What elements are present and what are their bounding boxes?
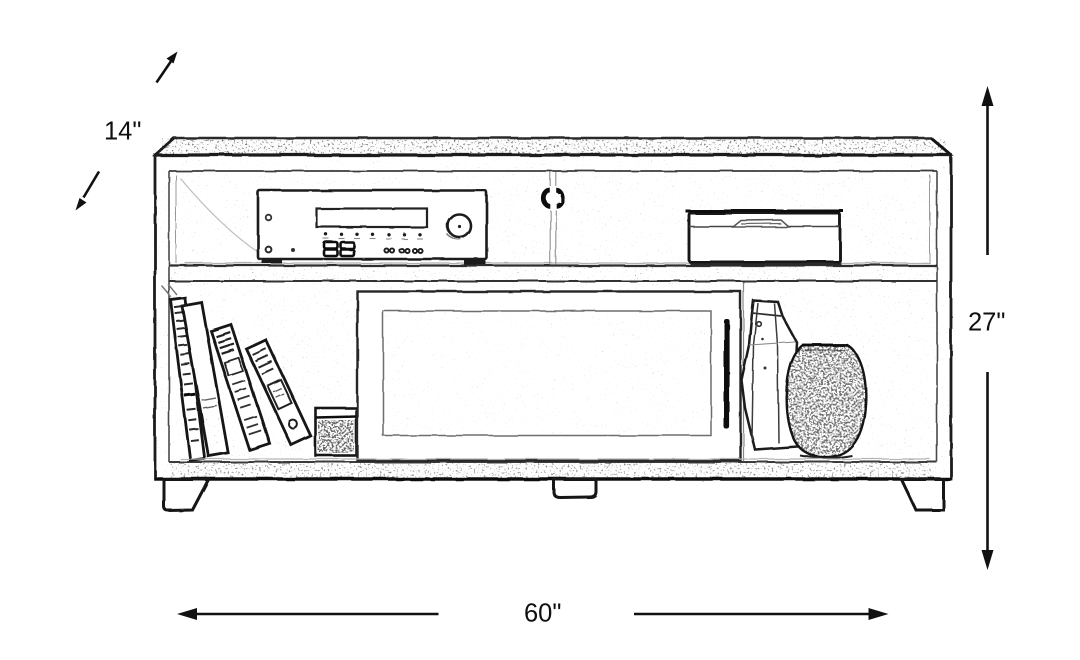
svg-text:27": 27" — [968, 309, 1005, 337]
svg-text:60": 60" — [524, 600, 561, 628]
svg-text:14": 14" — [104, 118, 141, 146]
